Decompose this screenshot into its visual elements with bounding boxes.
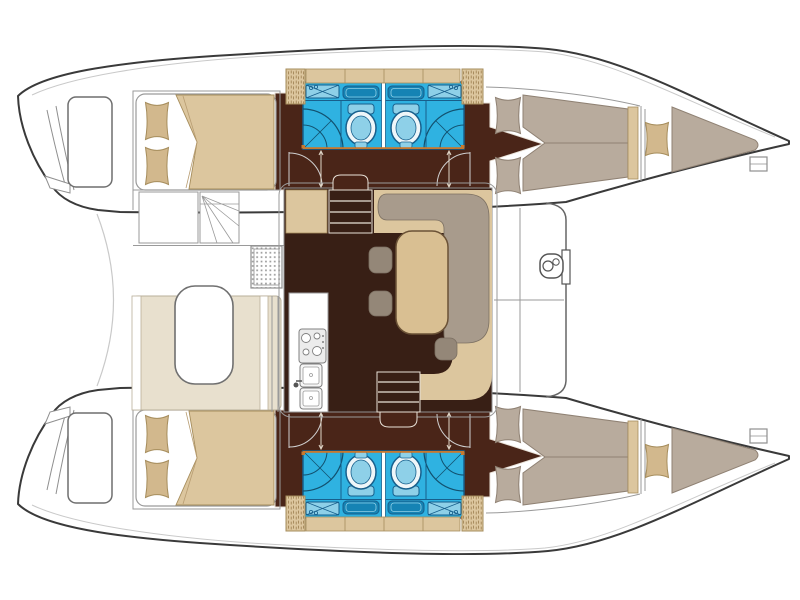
- stove-knob: [322, 341, 324, 343]
- step-bullnose: [333, 175, 368, 190]
- burner: [303, 349, 309, 355]
- bench-back-rail: [132, 296, 141, 410]
- burner: [313, 347, 322, 356]
- stove-knob: [322, 347, 324, 349]
- stool: [369, 247, 392, 273]
- burner: [302, 334, 311, 343]
- salon: [279, 175, 497, 427]
- stool: [435, 338, 457, 360]
- step-bullnose: [380, 412, 417, 427]
- helm-locker: [139, 192, 198, 243]
- cockpit-table: [175, 286, 233, 384]
- deck-grating: [251, 246, 282, 288]
- sideboard: [286, 190, 327, 233]
- salon-table: [396, 231, 448, 334]
- companionway-steps: [377, 372, 420, 427]
- floor-plan-canvas: [0, 0, 800, 600]
- companionway-steps: [329, 175, 372, 233]
- burner: [314, 333, 320, 339]
- galley-sink-inner: [303, 391, 319, 406]
- galley: [289, 293, 328, 412]
- helm-steps: [200, 192, 239, 243]
- galley-sink-inner: [303, 367, 319, 384]
- cockpit: [132, 286, 281, 412]
- stool: [369, 291, 392, 316]
- bridgedeck: [97, 175, 570, 427]
- bench-back-rail: [260, 296, 268, 410]
- stove-knob: [322, 335, 324, 337]
- catamaran-floor-plan: [0, 0, 800, 600]
- faucet-icon: [294, 383, 299, 388]
